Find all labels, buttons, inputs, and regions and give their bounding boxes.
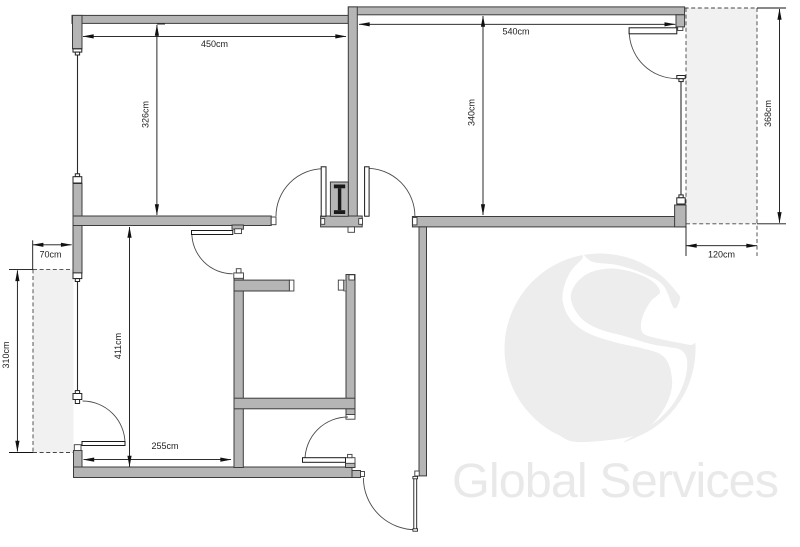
svg-text:70cm: 70cm (39, 250, 61, 260)
svg-text:411cm: 411cm (113, 333, 123, 359)
svg-text:368cm: 368cm (763, 100, 773, 127)
svg-text:340cm: 340cm (467, 99, 477, 126)
svg-text:310cm: 310cm (1, 341, 11, 368)
svg-text:540cm: 540cm (502, 27, 529, 37)
svg-text:120cm: 120cm (708, 250, 735, 260)
svg-text:326cm: 326cm (141, 101, 151, 128)
svg-text:Global Services: Global Services (452, 454, 779, 508)
svg-text:255cm: 255cm (151, 441, 178, 451)
svg-text:450cm: 450cm (201, 39, 228, 49)
